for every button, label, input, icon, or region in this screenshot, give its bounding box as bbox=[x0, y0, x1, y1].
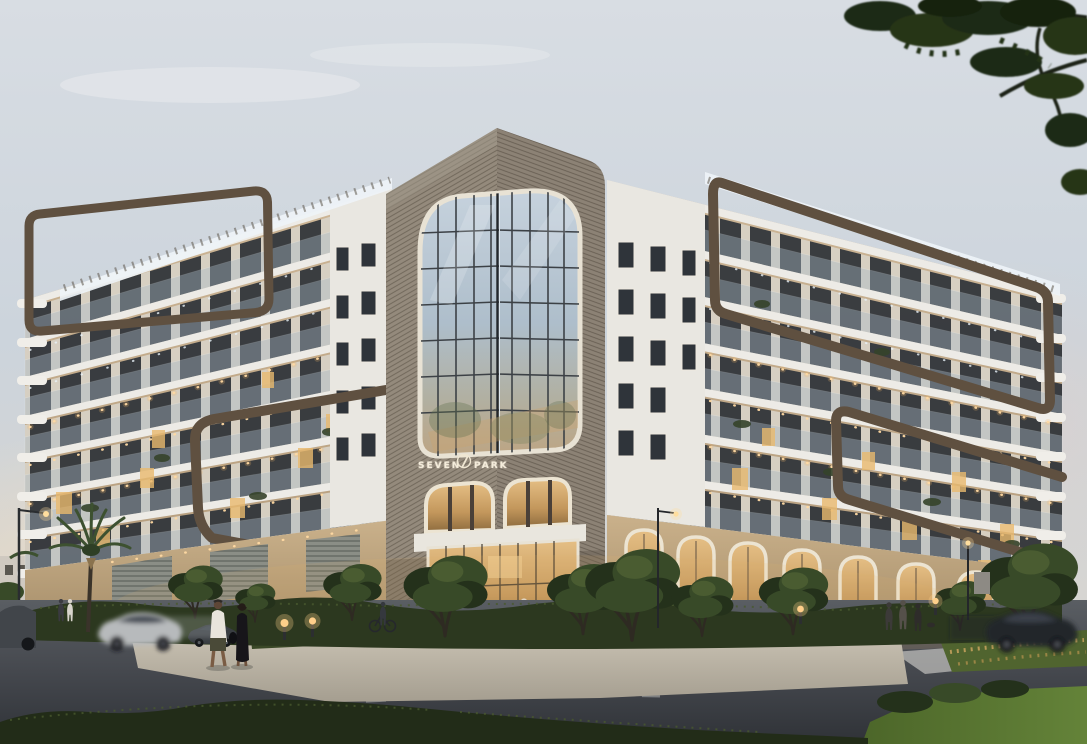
lawn-shrub bbox=[981, 680, 1029, 698]
scene-svg: SEVEN SEVEN PARK PARK bbox=[0, 0, 1087, 744]
cloud bbox=[310, 43, 550, 67]
small-dog bbox=[927, 623, 935, 628]
lawn-shrub bbox=[929, 683, 981, 703]
logo-word-seven: SEVEN bbox=[418, 461, 461, 471]
wayfinding-panel bbox=[974, 572, 990, 594]
logo-word-park: PARK bbox=[474, 461, 509, 471]
rendering-canvas: SEVEN SEVEN PARK PARK bbox=[0, 0, 1087, 744]
handbag bbox=[229, 632, 237, 644]
lawn-shrub bbox=[877, 691, 933, 713]
cloud bbox=[60, 67, 360, 103]
